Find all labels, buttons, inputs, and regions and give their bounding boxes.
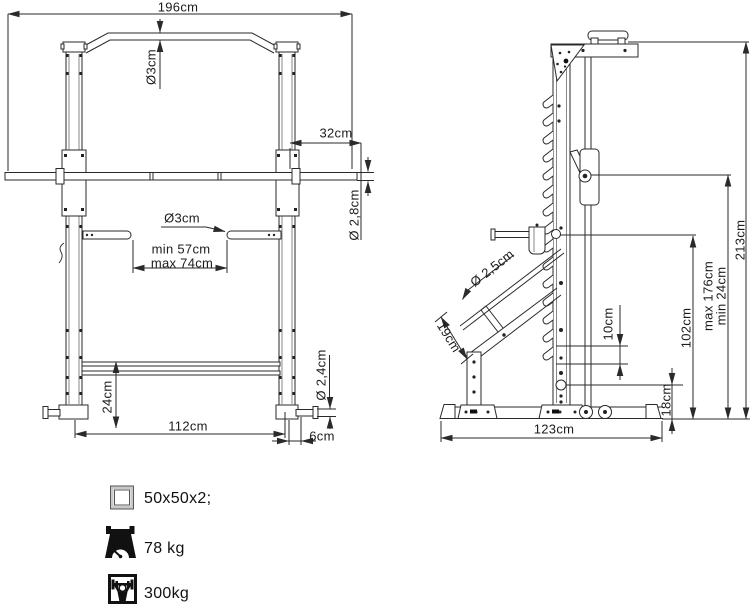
safety-stopper <box>491 224 696 255</box>
left-upright <box>61 42 87 405</box>
max-load-icon <box>110 576 136 603</box>
right-bar-collar <box>292 169 300 185</box>
legend-tube-profile-label: 50x50x2; <box>144 491 211 507</box>
dim-rear-bar-height-label: 24cm <box>101 381 114 414</box>
right-upright <box>274 42 300 405</box>
dim-catcher-diameter-label: Ø3cm <box>164 212 200 225</box>
dim-catcher-max-label: max 74cm <box>151 257 213 270</box>
dim-overall-width <box>8 14 352 171</box>
left-bar-collar <box>56 169 64 185</box>
dim-bar-min-height-label: min 24cm <box>715 267 728 326</box>
side-view-drawing <box>435 31 750 442</box>
dim-stopper-height-label: 102cm <box>680 308 693 349</box>
legend-icons <box>105 486 136 603</box>
legend-max-load-label: 300kg <box>144 586 189 602</box>
hook-detail <box>59 243 64 263</box>
legend-weight-label: 78 kg <box>144 541 185 557</box>
bar-carriage <box>570 149 731 205</box>
main-column <box>553 45 570 405</box>
weight-scale-icon <box>105 526 136 558</box>
rear-stabilizer-bars <box>82 362 280 375</box>
guide-rod <box>585 57 591 407</box>
dim-peg-diameter-label: Ø 2,4cm <box>315 349 328 400</box>
dim-base-depth-label: 123cm <box>534 423 575 436</box>
dim-barbell-diameter-label: Ø 2,8cm <box>348 189 361 240</box>
dim-plate-peg-height-label: 18cm <box>660 384 673 417</box>
smith-machine-drawing <box>0 0 750 612</box>
barbell <box>5 169 357 185</box>
dim-overall-width-label: 196cm <box>158 1 199 14</box>
dim-peg-offset-label: 6cm <box>309 430 334 443</box>
leader-catcher-diameter <box>161 227 225 232</box>
top-crossbar <box>84 33 276 53</box>
dim-total-height-label: 213cm <box>734 220 747 261</box>
tube-profile-icon <box>111 486 134 509</box>
dim-top-bar-diameter-label: Ø3cm <box>145 49 158 85</box>
dim-inner-width-label: 112cm <box>168 420 208 433</box>
left-slide-sleeve <box>62 150 86 216</box>
dim-hook-spacing-label: 10cm <box>602 308 615 341</box>
dim-bar-end-offset-label: 32cm <box>320 127 353 140</box>
front-feet <box>43 405 318 419</box>
technical-drawing-page: 196cm Ø3cm 32cm Ø 2,8cm Ø3cm min 57cm ma… <box>0 0 750 612</box>
safety-catchers <box>83 231 281 239</box>
dim-catcher-min-label: min 57cm <box>152 243 211 256</box>
